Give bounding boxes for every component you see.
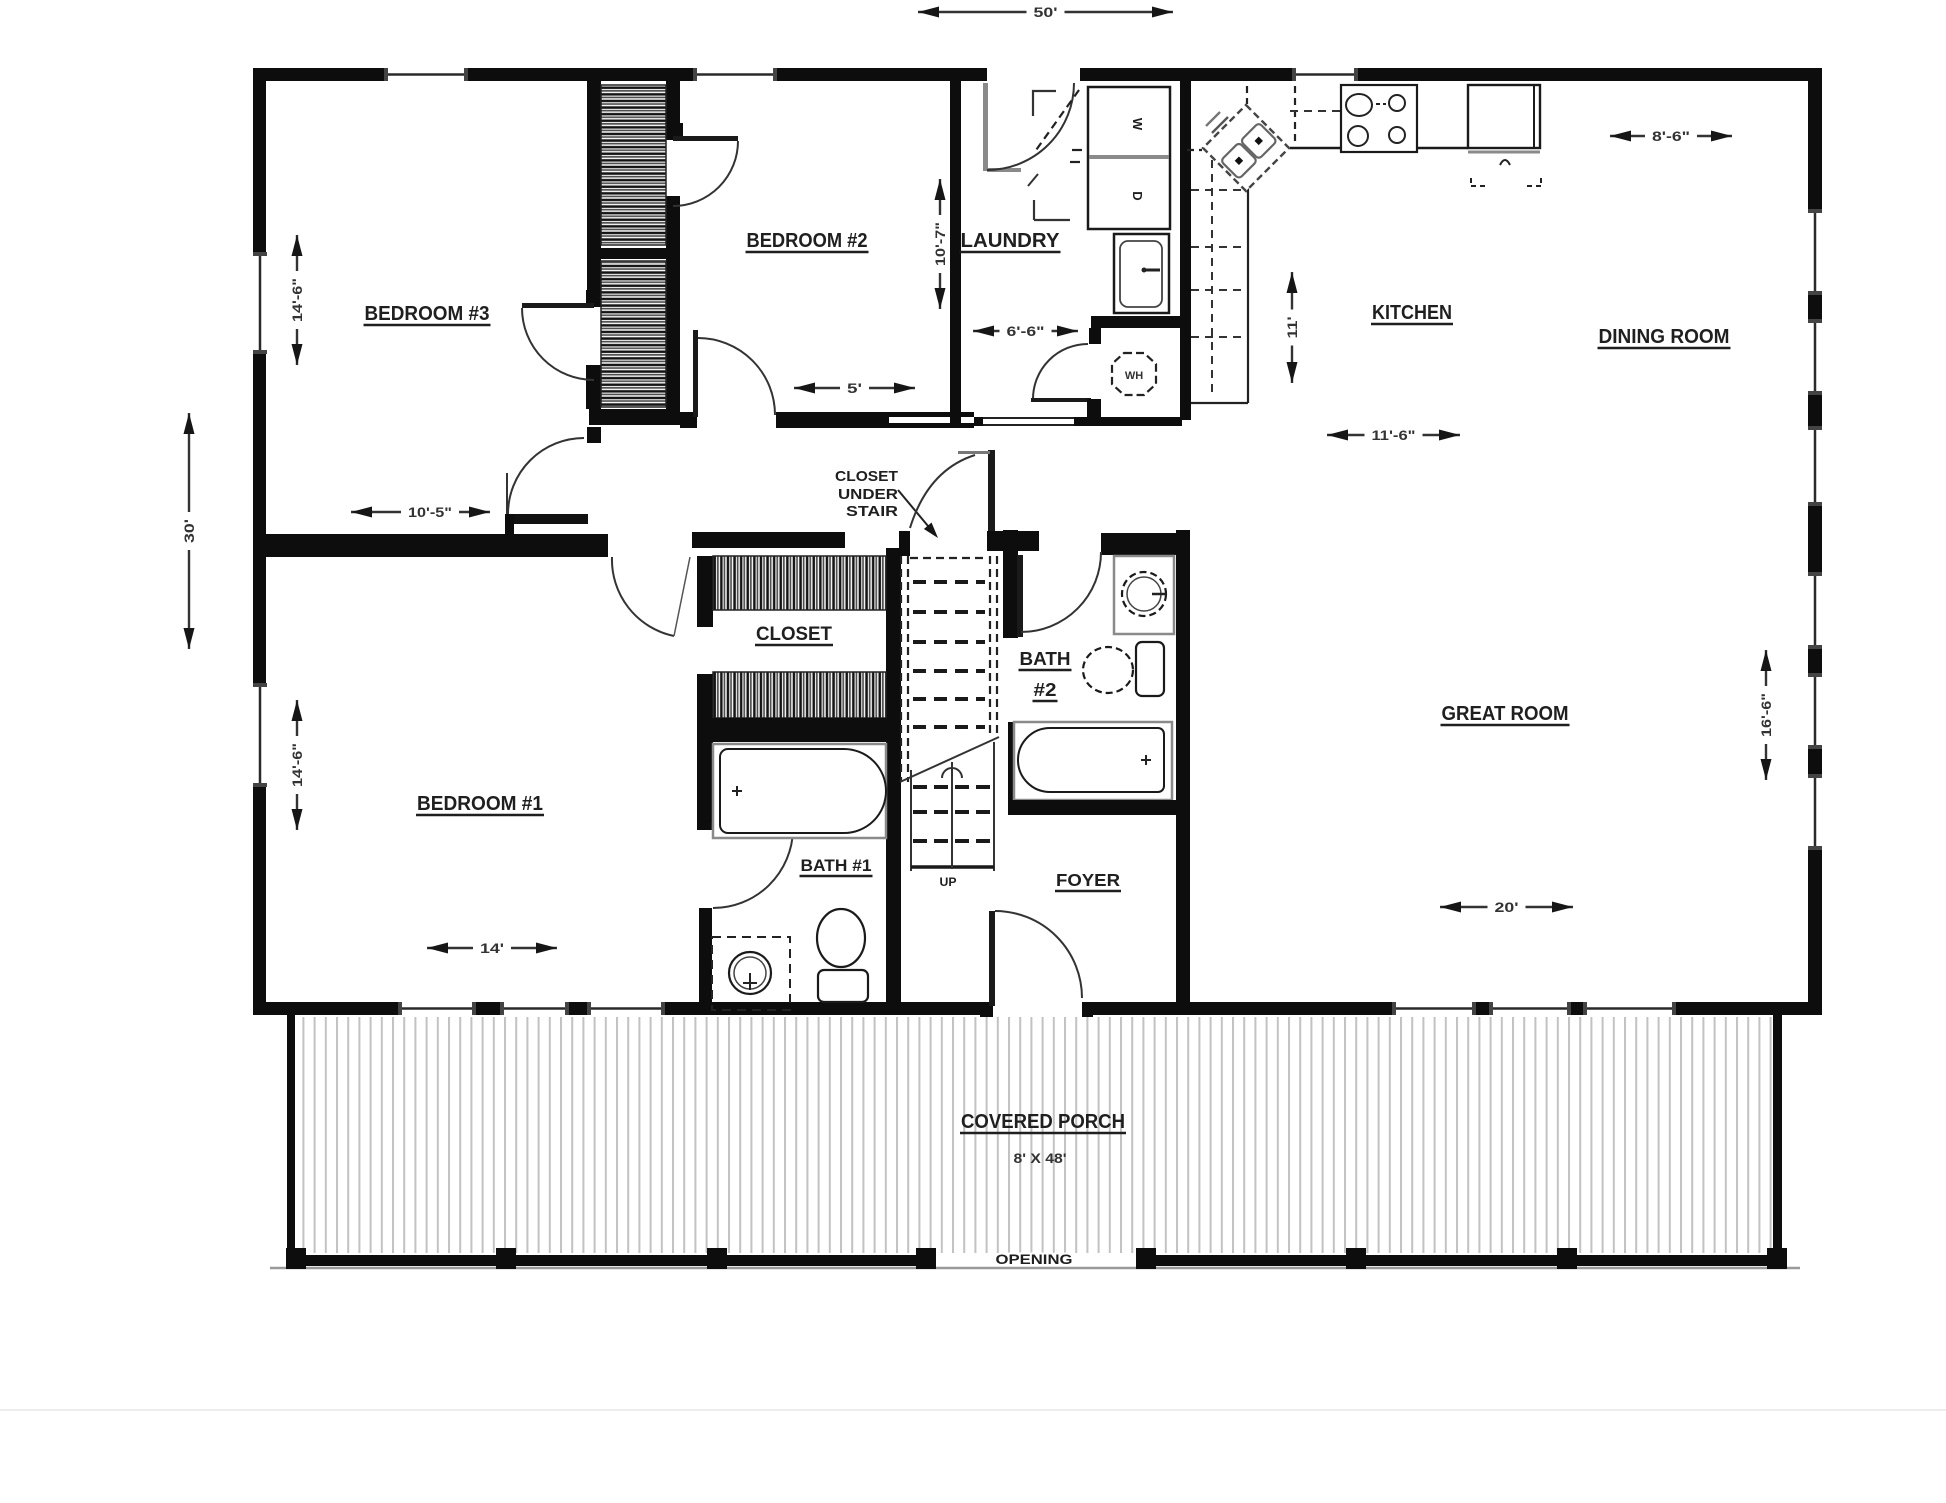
svg-text:8'-6": 8'-6" xyxy=(1652,129,1690,144)
svg-text:10'-7": 10'-7" xyxy=(933,222,948,266)
svg-text:BEDROOM #2: BEDROOM #2 xyxy=(747,230,868,252)
svg-text:FOYER: FOYER xyxy=(1056,870,1120,890)
svg-text:BEDROOM #1: BEDROOM #1 xyxy=(417,793,543,815)
svg-text:COVERED PORCH: COVERED PORCH xyxy=(961,1111,1125,1133)
svg-text:D: D xyxy=(1130,191,1145,200)
svg-text:8' X 48': 8' X 48' xyxy=(1014,1151,1067,1166)
svg-text:11'-6": 11'-6" xyxy=(1372,428,1416,443)
svg-text:LAUNDRY: LAUNDRY xyxy=(961,230,1061,252)
svg-text:KITCHEN: KITCHEN xyxy=(1372,302,1452,324)
svg-text:5': 5' xyxy=(847,381,862,396)
svg-text:BEDROOM #3: BEDROOM #3 xyxy=(365,303,490,325)
svg-text:BATH: BATH xyxy=(1020,649,1071,669)
svg-text:30': 30' xyxy=(182,519,197,543)
svg-text:6'-6": 6'-6" xyxy=(1007,324,1045,339)
svg-text:14'-6": 14'-6" xyxy=(290,743,305,787)
svg-text:14': 14' xyxy=(480,941,504,956)
svg-text:16'-6": 16'-6" xyxy=(1759,693,1774,737)
svg-text:W: W xyxy=(1130,118,1145,131)
svg-text:UP: UP xyxy=(940,875,957,889)
svg-text:CLOSET: CLOSET xyxy=(756,624,832,645)
svg-text:WH: WH xyxy=(1125,370,1143,382)
svg-text:14'-6": 14'-6" xyxy=(290,278,305,322)
svg-text:OPENING: OPENING xyxy=(996,1251,1073,1267)
svg-text:50': 50' xyxy=(1034,5,1058,20)
svg-text:DINING ROOM: DINING ROOM xyxy=(1599,326,1730,348)
svg-text:11': 11' xyxy=(1285,317,1300,339)
svg-text:UNDER: UNDER xyxy=(838,486,898,503)
svg-text:20': 20' xyxy=(1495,900,1519,915)
svg-text:CLOSET: CLOSET xyxy=(835,468,898,485)
svg-text:STAIR: STAIR xyxy=(846,503,898,520)
svg-text:BATH #1: BATH #1 xyxy=(801,856,872,875)
svg-text:10'-5": 10'-5" xyxy=(408,505,452,520)
svg-text:#2: #2 xyxy=(1034,680,1057,700)
svg-text:GREAT ROOM: GREAT ROOM xyxy=(1442,703,1569,725)
